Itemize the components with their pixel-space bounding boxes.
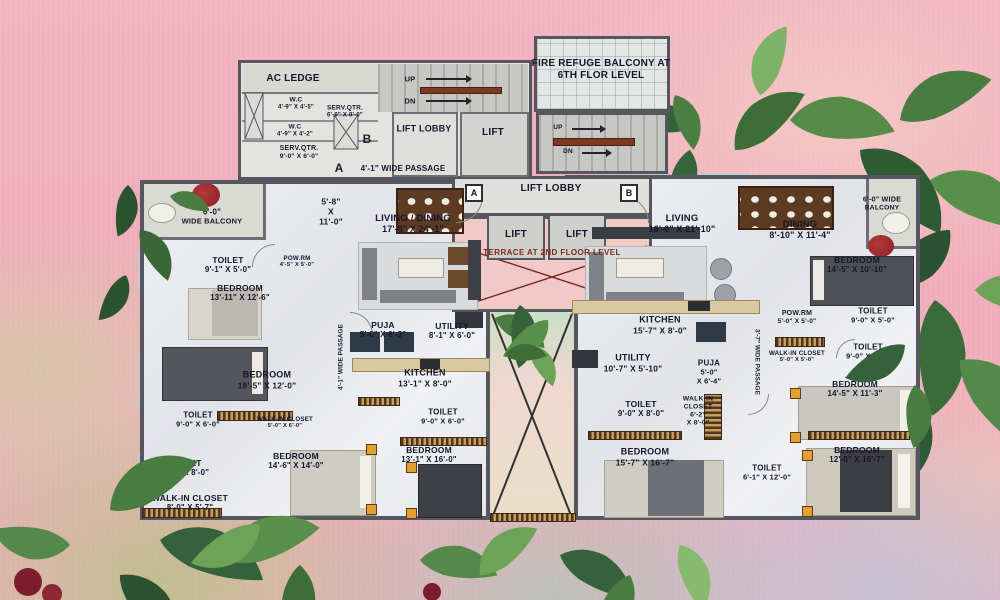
balcony-b-red-table [868,235,894,257]
toilet-a2-label: TOILET9'-0" X 6'-0" [176,411,220,430]
marker-a-lobby: A [465,184,483,202]
bed-a3-pillows [360,456,371,508]
up-label: UP [405,75,416,84]
down-arrow [426,100,466,102]
balcony-a-label: 6'-0"WIDE BALCONY [182,208,243,227]
bed-a4 [418,464,482,518]
bedroom-a1-label: BEDROOM13'-11" X 12'-6" [210,283,270,303]
passage-a-label: 4'-1" WIDE PASSAGE [338,324,345,390]
side-table-b [802,506,813,517]
closet-b1-label: WALK-IN CLOSET5'-0" X 5'-0" [769,350,825,364]
nook-a-label: 5'-8"X11'-0" [319,197,343,228]
side-table-a [406,508,417,519]
bed-b1-pillows [813,260,824,300]
bedroom-b1-label: BEDROOM14'-5" X 10'-10" [827,255,887,275]
powder-a-label: POW.RM4'-5" X 5'-0" [280,255,314,269]
toilet-b1-label: TOILET9'-0" X 5'-0" [851,307,895,326]
balcony-a-red-table [192,183,220,207]
marker-b-lobby: B [620,184,638,202]
floor-plan-canvas: AC LEDGE W.C4'-9" X 4'-5" SERV.QTR.6'-0"… [0,0,1000,600]
wc1-label: W.C4'-9" X 4'-5" [278,96,314,111]
stair-handrail [420,87,502,94]
bed-b3-blanket [648,460,704,516]
fire-down-arrow [582,152,606,154]
terrace-label: TERRACE AT 2ND FLOOR LEVEL [483,248,621,258]
balcony-b-label: 6'-0" WIDEBALCONY [863,196,901,213]
wardrobe-b2 [588,431,682,440]
powder-b-label: POW.RM5'-0" X 5'-0" [778,310,817,326]
side-table-a [366,504,377,515]
fire-up-arrow [572,128,600,130]
fire-up-label: UP [553,124,562,132]
armchair-a2 [448,270,470,288]
washer-b [572,350,598,368]
bedroom-b4-label: BEDROOM12'-0" X 16'-7" [829,445,884,465]
strip-x-mark [486,312,578,520]
marker-a-top: A [335,161,344,175]
living-a-label: LIVING / DINING17'-8" X 24'-1" [375,213,451,235]
ac-ledge-label: AC LEDGE [266,73,319,85]
tv-console-a [468,240,481,300]
kitchen-b-label: KITCHEN15'-7" X 8'-0" [633,315,687,336]
closet-b2-label: WALK-INCLOSET6'-2"X 8'-0" [683,396,713,429]
dining-b-label: DINING8'-10" X 11'-4" [769,219,830,241]
passage-b-label: 3'-7" WIDE PASSAGE [754,329,761,395]
lift2-label: LIFT [566,229,588,241]
lift-lobby-top-label: LIFT LOBBY [397,124,452,135]
balcony-b-white-table [882,212,910,234]
living-b-label: LIVING16'-0" X 21'-10" [649,213,716,235]
shaft-x-1 [244,92,264,140]
wardrobe-b3 [808,431,910,440]
puja-cabinet-b [696,322,726,342]
side-table-b [790,432,801,443]
toilet-a1-label: TOILET9'-1" X 5'-0" [205,255,251,275]
balcony-a-white-table [148,203,176,223]
puja-b-label: PUJA5'-0"X 6'-4" [697,358,721,385]
toilet-b3-label: TOILET9'-0" X 8'-0" [618,399,664,419]
marker-b-top: B [363,132,372,146]
bed-b4-pillows [898,454,910,508]
bedroom-b2-label: BEDROOM14'-5" X 11'-3" [827,379,882,399]
side-table-a [366,444,377,455]
stove-b [688,301,710,311]
lift-top-label: LIFT [482,127,504,139]
closet-a2-label: WALK-IN CLOSET8'-0" X 5'-7" [152,493,228,513]
bed-b2-pillows [900,390,911,434]
side-table-b [802,450,813,461]
lift1-label: LIFT [505,229,527,241]
serv2-label: SERV.QTR.9'-0" X 6'-0" [280,145,319,161]
toilet-a3-label: TOILET8'-0" X 8'-0" [163,458,209,478]
strip-bottom-grille [490,513,576,522]
lift-lobby-label: LIFT LOBBY [521,183,582,195]
side-table-b [790,388,801,399]
fire-stair-handrail [553,138,635,146]
closet-a1-label: WALK-IN CLOSET5'-0" X 6'-0" [257,416,313,430]
fire-refuge-label: FIRE REFUGE BALCONY AT6TH FLOR LEVEL [532,58,671,82]
bedroom-a2-label: BEDROOM18'-5" X 12'-0" [238,370,297,391]
pouf-b1 [710,258,732,280]
passage-top-label: 4'-1" WIDE PASSAGE [361,164,446,174]
coffee-table-b [616,258,664,278]
kitchen-counter-b [572,300,760,314]
toilet-a4-label: TOILET9'-0" X 6'-0" [421,408,465,427]
serv1-label: SERV.QTR.6'-0" X 9'-0" [327,104,363,119]
utility-a-label: UTILITY8'-1" X 6'-0" [429,321,475,341]
wardrobe-b1 [775,337,825,347]
sofa-a2 [380,290,456,303]
sofa-a [362,248,377,300]
armchair-a1 [448,247,470,265]
kitchen-a-label: KITCHEN13'-1" X 8'-0" [398,368,452,389]
up-arrow [426,78,466,80]
coffee-table-a [398,258,444,278]
wardrobe-a3 [358,397,400,406]
sofa-b [589,252,604,302]
fire-dn-label: DN [563,148,573,156]
toilet-b4-label: TOILET6'-1" X 12'-0" [743,464,791,483]
bedroom-a4-label: BEDROOM13'-1" X 16'-0" [401,445,456,465]
wc2-label: W.C4'-9" X 4'-2" [277,123,313,138]
toilet-b2-label: TOILET9'-0" X 5'-0" [846,343,890,362]
bedroom-a3-label: BEDROOM14'-6" X 14'-0" [268,451,323,471]
utility-b-label: UTILITY10'-7" X 5'-10" [604,353,663,374]
dn-label: DN [404,97,415,106]
bedroom-b3-label: BEDROOM15'-7" X 16'-7" [616,447,675,468]
puja-a-label: PUJA5'-0" X 6'-3" [360,320,406,340]
lift-top-room [460,112,529,177]
